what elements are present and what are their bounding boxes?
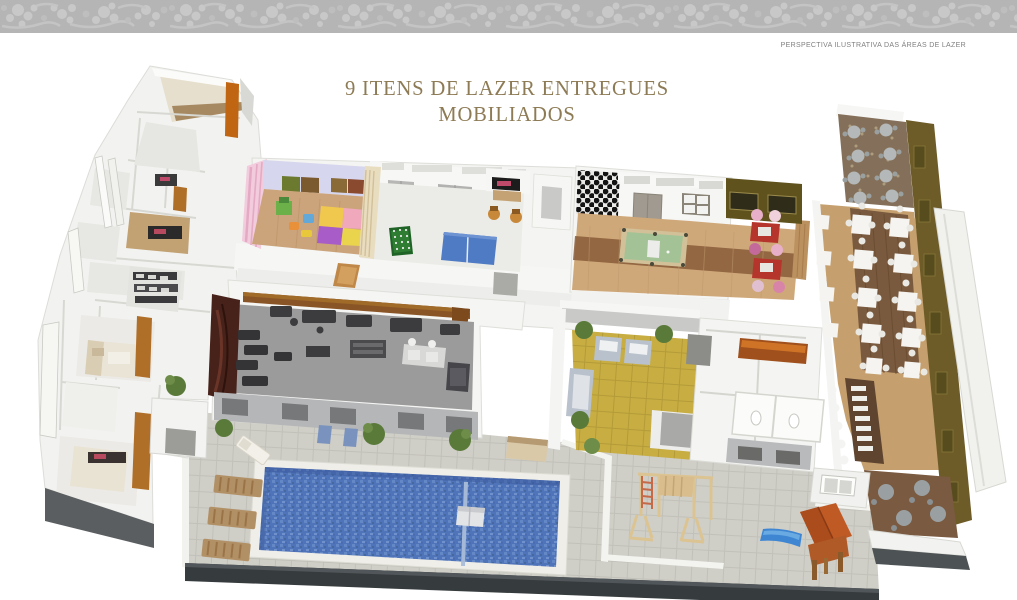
svg-text:PERSPECTIVA ILUSTRATIVA DAS ÁR: PERSPECTIVA ILUSTRATIVA DAS ÁREAS DE LAZ…	[781, 40, 966, 49]
svg-text:MOBILIADOS: MOBILIADOS	[438, 104, 575, 126]
svg-text:9 ITENS DE LAZER ENTREGUES: 9 ITENS DE LAZER ENTREGUES	[345, 78, 669, 100]
